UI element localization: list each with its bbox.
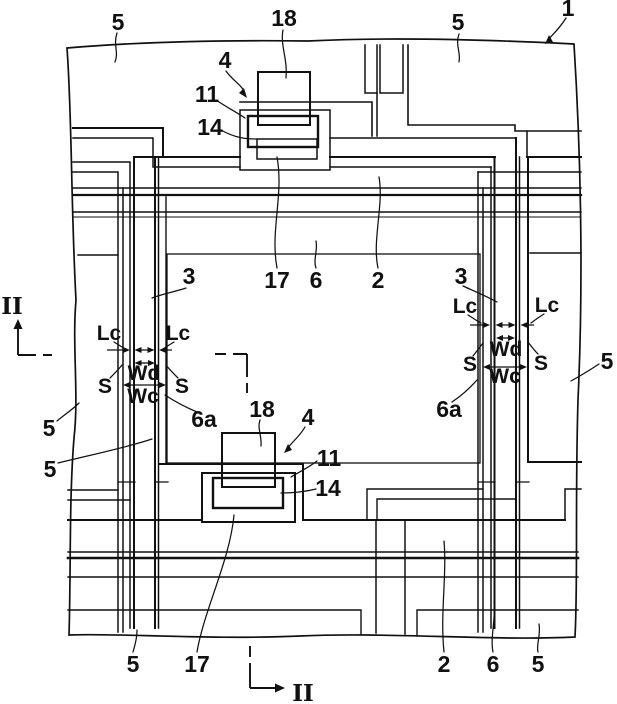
ref-label-5-left-lower: 5 [44, 456, 57, 482]
dim-label-lc-right-inner: Lc [453, 295, 478, 318]
ref-label-6-upper: 6 [310, 267, 323, 293]
ref-label-17-upper: 17 [264, 267, 290, 293]
dim-label-wc-left: Wc [127, 385, 159, 408]
patent-figure: 5 18 4 11 14 5 1 3 6a 5 5 17 6 2 3 6a 5 … [0, 0, 617, 704]
ref-label-3-left: 3 [183, 263, 196, 289]
gate-line-top [73, 102, 581, 217]
dim-label-lc-left-inner: Lc [166, 322, 191, 345]
patent-figure-drawing: 5 18 4 11 14 5 1 3 6a 5 5 17 6 2 3 6a 5 … [0, 0, 617, 704]
storage-connector-top [365, 45, 581, 136]
ref-label-5-right: 5 [601, 348, 614, 374]
bottom-row-lines [68, 520, 578, 636]
dim-label-s-right-inner: S [463, 353, 477, 376]
dim-label-s-right-outer: S [534, 352, 548, 375]
ref-label-18-bottom: 18 [249, 396, 275, 422]
section-marker-left [14, 319, 53, 355]
leader-arrowheads [239, 35, 553, 453]
ref-label-5-left-upper: 5 [43, 415, 56, 441]
section-marker-bottom [250, 646, 285, 693]
ref-label-11-bottom: 11 [317, 445, 342, 471]
ref-label-11-top: 11 [195, 81, 220, 107]
ref-label-1: 1 [562, 0, 575, 21]
ref-label-2-bottom: 2 [438, 651, 451, 677]
ref-label-5-bottom-right: 5 [532, 651, 545, 677]
ref-label-18-top: 18 [271, 5, 297, 31]
dim-label-wd-left: Wd [128, 362, 161, 385]
ref-label-6-bottom: 6 [487, 651, 500, 677]
ref-label-5-top-left: 5 [112, 9, 125, 35]
ref-label-4-bottom: 4 [302, 404, 315, 430]
ref-label-5-top-right: 5 [452, 9, 465, 35]
section-label-ii-bottom: II [292, 680, 314, 704]
section-label-ii-left: II [1, 293, 23, 320]
ref-label-6a-right: 6a [436, 396, 462, 422]
ref-label-17-bottom: 17 [184, 651, 210, 677]
ref-label-14-bottom: 14 [315, 475, 341, 501]
dim-label-lc-left-outer: Lc [97, 322, 122, 345]
dim-label-lc-right-outer: Lc [535, 294, 560, 317]
contact-structure-top [240, 72, 330, 170]
section-line-corner [215, 354, 247, 393]
dim-label-s-left-outer: S [98, 375, 112, 398]
ref-label-2-upper: 2 [372, 267, 385, 293]
contact-structure-bottom [202, 433, 295, 522]
ref-label-6a-left: 6a [191, 406, 217, 432]
dim-label-wd-right: Wd [490, 338, 523, 361]
ref-label-14-top: 14 [197, 114, 223, 140]
dim-label-s-left-inner: S [175, 375, 189, 398]
dim-label-wc-right: Wc [489, 365, 521, 388]
ref-label-4-top: 4 [219, 47, 232, 73]
ref-label-5-bottom-left: 5 [127, 651, 140, 677]
ref-label-3-right: 3 [455, 263, 468, 289]
